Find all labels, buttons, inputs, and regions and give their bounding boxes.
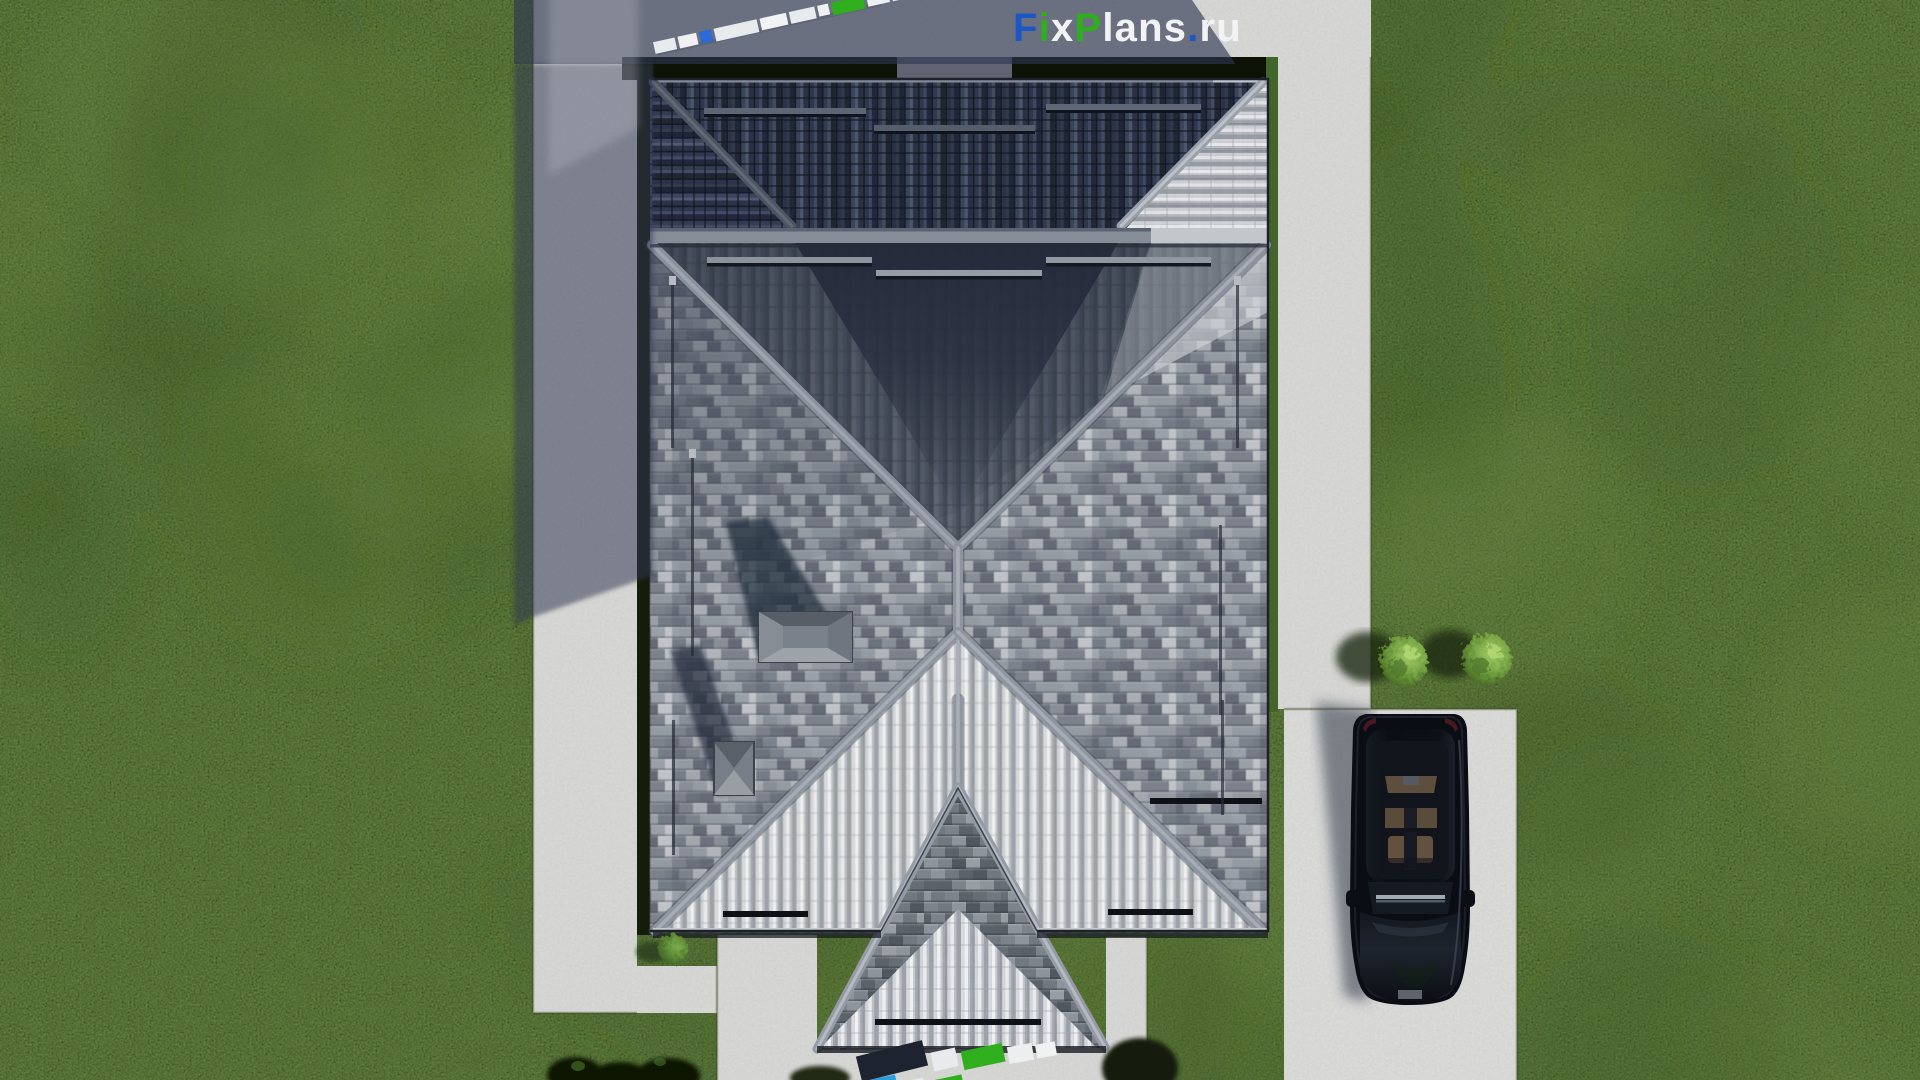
svg-text:FixPlans.ru: FixPlans.ru [1013,6,1242,50]
